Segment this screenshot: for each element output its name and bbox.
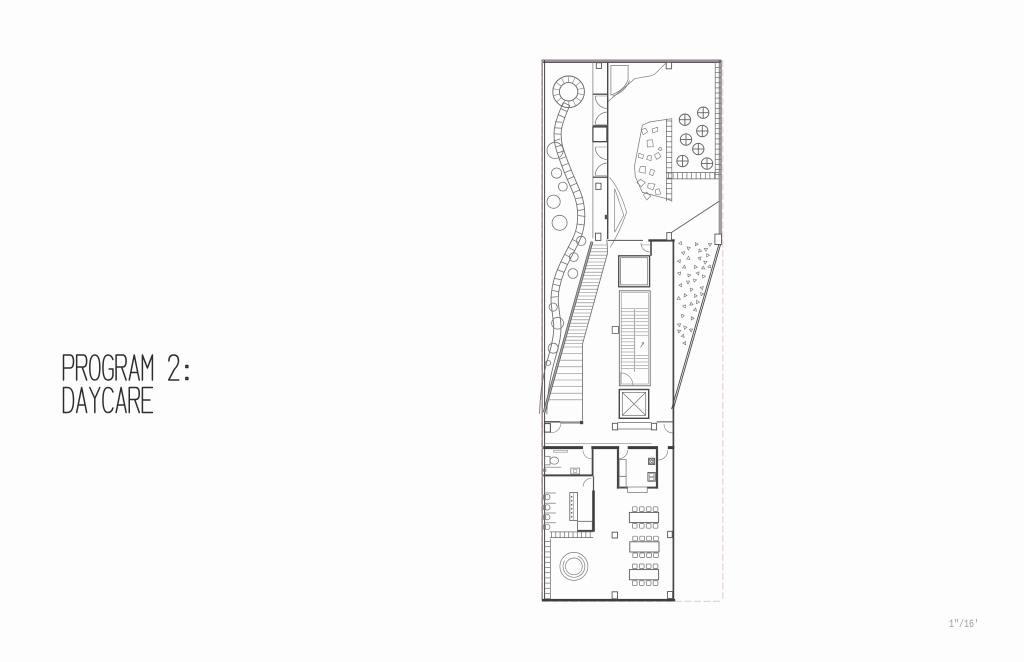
svg-text:1"/16': 1"/16' bbox=[949, 619, 979, 631]
